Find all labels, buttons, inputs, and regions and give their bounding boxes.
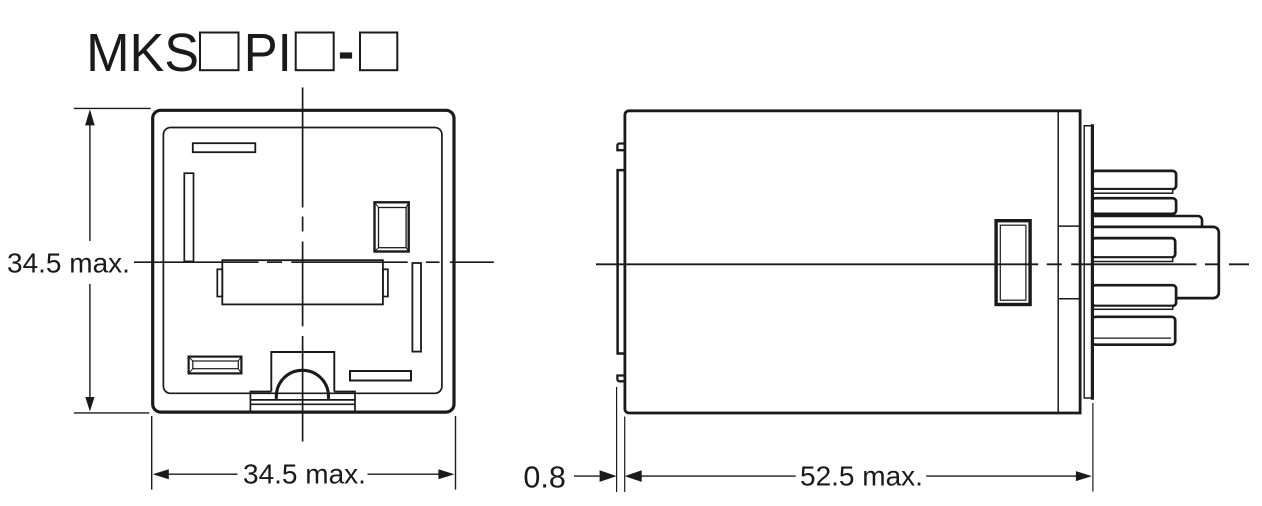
svg-text:0.8: 0.8 — [523, 461, 565, 495]
svg-text:34.5 max.: 34.5 max. — [243, 458, 366, 489]
svg-text:PI: PI — [244, 23, 292, 83]
svg-text:34.5 max.: 34.5 max. — [7, 247, 130, 278]
svg-text:52.5 max.: 52.5 max. — [800, 461, 923, 492]
svg-text:MKS: MKS — [86, 23, 199, 83]
